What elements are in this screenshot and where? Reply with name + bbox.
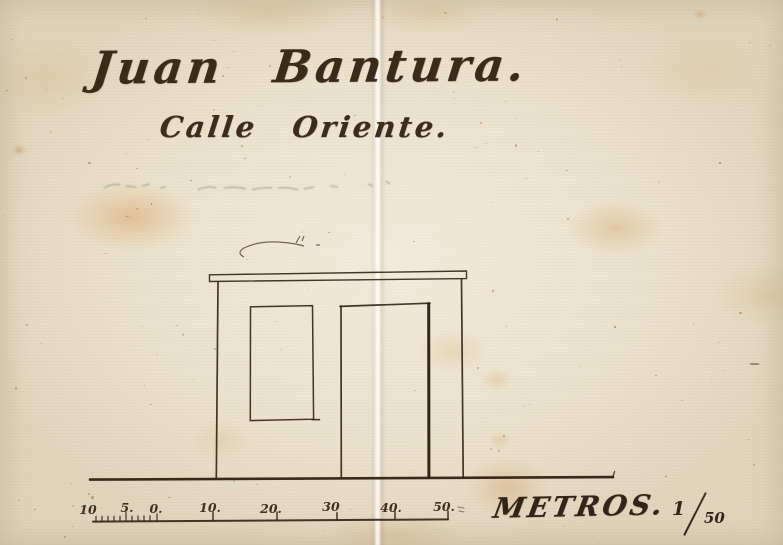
facade-drawing: 10 5. 0. 10. 20. 30 40. 50. — [0, 0, 783, 545]
scale-tick-label: 0. — [149, 501, 162, 516]
cornice-line — [210, 271, 467, 282]
paper-sheet: Juan Bantura. Calle Oriente. — [0, 0, 783, 545]
right-wall-line — [462, 279, 464, 477]
ink-speck — [750, 364, 759, 365]
scale-tick-label: 10. — [199, 500, 221, 515]
ratio-numerator: 1 — [672, 498, 685, 520]
scale-tick-label: 30 — [322, 499, 340, 514]
ground-line — [90, 477, 613, 480]
ghost-text-marks — [104, 181, 390, 190]
scale-unit-label: METROS. — [491, 488, 668, 525]
ink-flourish — [240, 236, 320, 257]
scale-tick-label: 10 — [79, 502, 97, 517]
scale-ratio: 1 50 — [664, 490, 730, 542]
left-wall-line — [216, 282, 218, 479]
window-outline — [250, 306, 313, 421]
door-top-line — [340, 303, 430, 306]
scale-tick-label: 50. — [433, 499, 455, 514]
stray-equals-mark — [458, 507, 464, 512]
scale-tick-label: 20. — [259, 501, 282, 516]
scale-tick-label: 40. — [380, 500, 402, 515]
ratio-denominator: 50 — [704, 509, 725, 527]
scale-tick-label: 5. — [120, 500, 133, 515]
